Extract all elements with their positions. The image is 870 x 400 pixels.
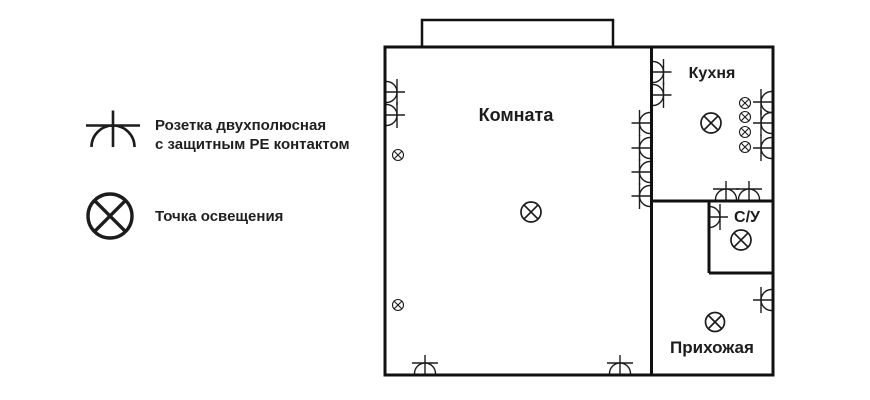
- legend-label-light: Точка освещения: [155, 207, 283, 226]
- room-label-su: С/У: [734, 209, 761, 226]
- floor-plan-drawing: КомнатаКухняС/УПрихожая: [0, 0, 870, 400]
- legend-label-socket: Розетка двухполюсная с защитным PE конта…: [155, 116, 350, 154]
- room-label-komnata: Комната: [479, 105, 555, 125]
- balcony-outline: [422, 20, 613, 47]
- room-label-kuhnya: Кухня: [689, 65, 736, 82]
- outer-wall: [385, 47, 773, 375]
- electrical-floor-plan-page: КомнатаКухняС/УПрихожая Розетка двухполю…: [0, 0, 870, 400]
- room-label-prihozhaya: Прихожая: [670, 338, 754, 357]
